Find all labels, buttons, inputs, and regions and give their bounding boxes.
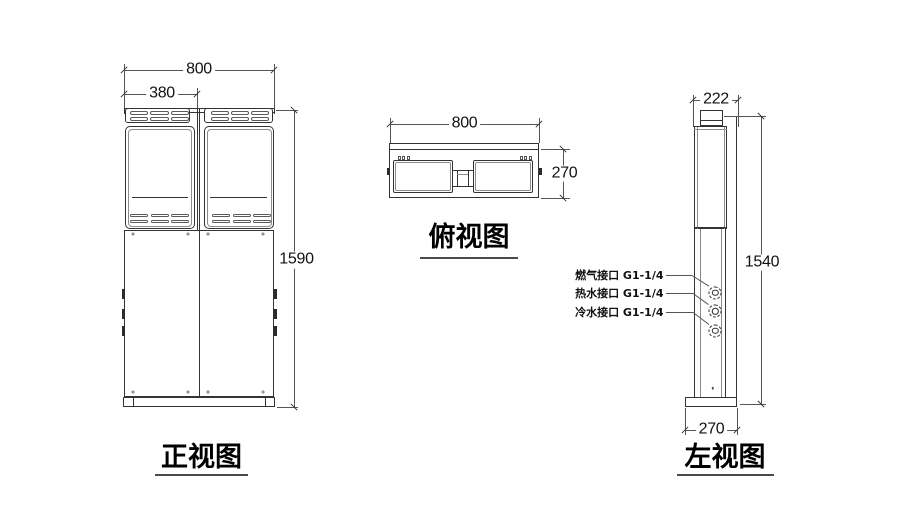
title-underline [677, 474, 774, 477]
screw [132, 232, 135, 235]
vent-slot [211, 117, 229, 121]
vent-slot [233, 214, 251, 218]
vent-slot [171, 117, 189, 121]
vent-slot [130, 117, 148, 121]
front-view-title: 正视图 [161, 444, 242, 471]
vent-slot [212, 220, 230, 224]
vent-slot [171, 111, 189, 115]
screw [262, 390, 265, 393]
heater-unit-top-inner [475, 162, 531, 191]
panel-line [694, 129, 727, 130]
handle-line [132, 197, 189, 198]
top-dim-depth: 270 [549, 165, 581, 182]
screw [187, 390, 190, 393]
cold-water-connection-label: 冷水接口 G1-1/4 [575, 304, 663, 320]
screw [262, 232, 265, 235]
hinge-mark [122, 326, 125, 336]
vent-slot [231, 117, 249, 121]
cabinet-divider-line [199, 230, 200, 397]
screw [207, 232, 210, 235]
top-dim-width: 800 [449, 116, 481, 133]
base-plinth [123, 397, 275, 407]
handle-line [210, 197, 267, 198]
upper-body-side [694, 126, 727, 229]
vent-slot [151, 214, 170, 218]
upper-door-inner-line [128, 129, 193, 227]
base-tick-line [265, 397, 266, 407]
vent-strip [125, 108, 190, 124]
hot-water-connection-label: 热水接口 G1-1/4 [575, 285, 663, 301]
panel-line [721, 229, 722, 397]
hinge-mark [122, 309, 125, 319]
screw [712, 387, 714, 389]
top-view-title: 俯视图 [429, 224, 510, 251]
panel-line [700, 229, 701, 397]
screw [207, 390, 210, 393]
vent-slot [233, 220, 251, 224]
title-underline [420, 257, 518, 260]
vent-strip [204, 108, 273, 124]
front-dim-height: 1590 [276, 252, 316, 269]
hinge-mark [122, 289, 125, 299]
rear-bracket-line [736, 116, 737, 398]
vent-slot [253, 220, 271, 224]
front-dim-panel-width: 380 [146, 85, 178, 102]
vent-slot [130, 214, 148, 218]
vent-slot [150, 117, 168, 121]
edge-line [700, 120, 724, 121]
vent-slot [130, 220, 148, 224]
connector-line [453, 186, 473, 187]
screw [132, 390, 135, 393]
vent-slot [151, 220, 170, 224]
latch-mark [387, 168, 390, 176]
base-plinth [685, 397, 737, 407]
vent-slot [150, 111, 168, 115]
vent-slot [211, 111, 229, 115]
base-tick-line [133, 397, 134, 407]
edge-line [725, 229, 726, 397]
vent-slot [251, 117, 269, 121]
screw [187, 232, 190, 235]
vent-slot [231, 111, 249, 115]
leader-line [666, 312, 694, 313]
vent-slot [212, 214, 230, 218]
left-dim-base-depth: 270 [696, 422, 728, 439]
hinge-mark [274, 309, 277, 319]
hinge-mark [274, 326, 277, 336]
vent-slot [130, 111, 148, 115]
hinge-mark [274, 289, 277, 299]
connector-line [457, 174, 468, 175]
leader-line [666, 293, 694, 294]
vent-slot [253, 214, 271, 218]
connector-line [453, 170, 473, 171]
mullion-line [197, 108, 198, 230]
vent-slot [171, 214, 189, 218]
ext-line [274, 64, 275, 108]
heater-unit-top-inner [395, 162, 451, 191]
connector-line [468, 170, 469, 186]
vent-slot [251, 111, 269, 115]
left-dim-height: 1540 [742, 254, 782, 271]
edge-line [389, 149, 540, 150]
panel-line [694, 227, 727, 228]
panel-line [724, 127, 725, 229]
left-dim-depth: 222 [700, 92, 732, 109]
left-view-title: 左视图 [685, 444, 766, 471]
latch-mark [539, 168, 542, 176]
front-dim-width: 800 [183, 62, 215, 79]
gas-connection-label: 燃气接口 G1-1/4 [575, 267, 663, 283]
vent-slot [171, 220, 189, 224]
upper-door-inner-line [207, 129, 272, 227]
panel-line [697, 127, 698, 229]
connector-line [457, 170, 458, 186]
title-underline [155, 474, 248, 477]
flue-cap [700, 110, 724, 126]
mullion-line [199, 108, 200, 230]
leader-line [666, 275, 692, 276]
drawing-canvas: 800 380 [0, 0, 900, 508]
